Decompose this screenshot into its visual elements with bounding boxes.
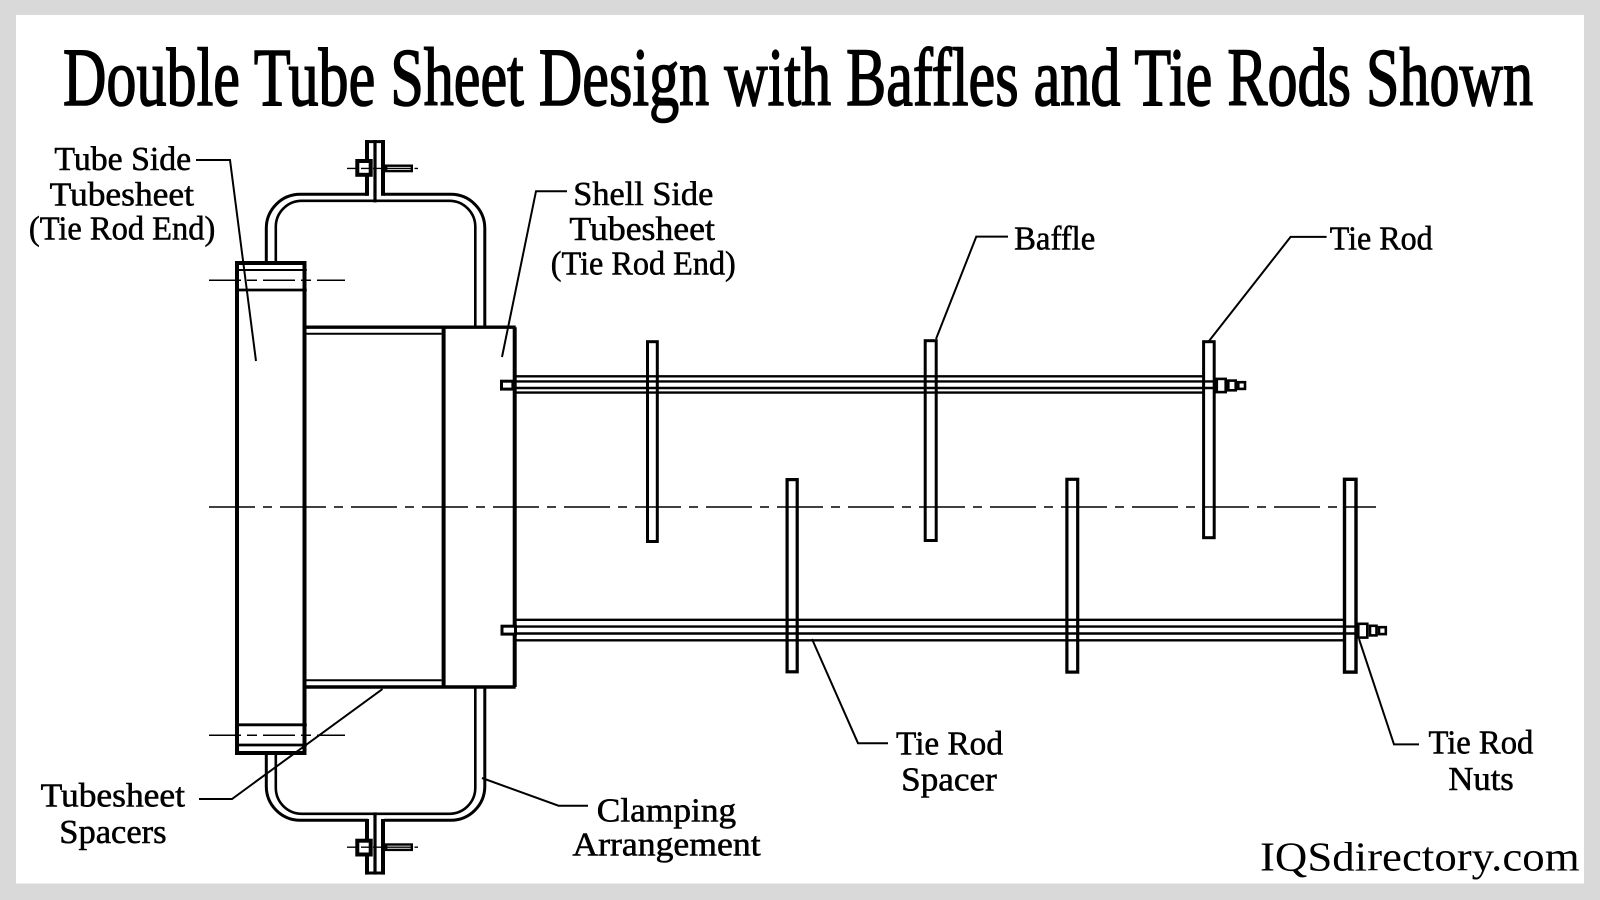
svg-text:Tubesheet: Tubesheet (50, 177, 195, 214)
svg-text:(Tie Rod End): (Tie Rod End) (551, 246, 736, 283)
svg-text:Tie Rod: Tie Rod (1330, 220, 1433, 257)
svg-text:Tube Side: Tube Side (54, 141, 191, 178)
svg-text:Clamping: Clamping (597, 793, 737, 830)
svg-text:Tubesheet: Tubesheet (569, 211, 715, 248)
svg-text:Spacer: Spacer (901, 762, 997, 799)
svg-text:Tie Rod: Tie Rod (896, 726, 1003, 763)
svg-text:Baffle: Baffle (1014, 220, 1095, 257)
svg-text:Double Tube Sheet Design with: Double Tube Sheet Design with Baffles an… (63, 31, 1533, 123)
svg-text:Tie Rod: Tie Rod (1428, 724, 1533, 761)
svg-text:Spacers: Spacers (59, 814, 166, 851)
svg-text:(Tie Rod End): (Tie Rod End) (29, 211, 215, 248)
svg-text:Nuts: Nuts (1448, 761, 1513, 798)
svg-text:Tubesheet: Tubesheet (41, 778, 186, 815)
svg-text:Shell Side: Shell Side (573, 176, 713, 213)
svg-text:Arrangement: Arrangement (572, 827, 761, 864)
svg-text:IQSdirectory.com: IQSdirectory.com (1260, 834, 1580, 880)
